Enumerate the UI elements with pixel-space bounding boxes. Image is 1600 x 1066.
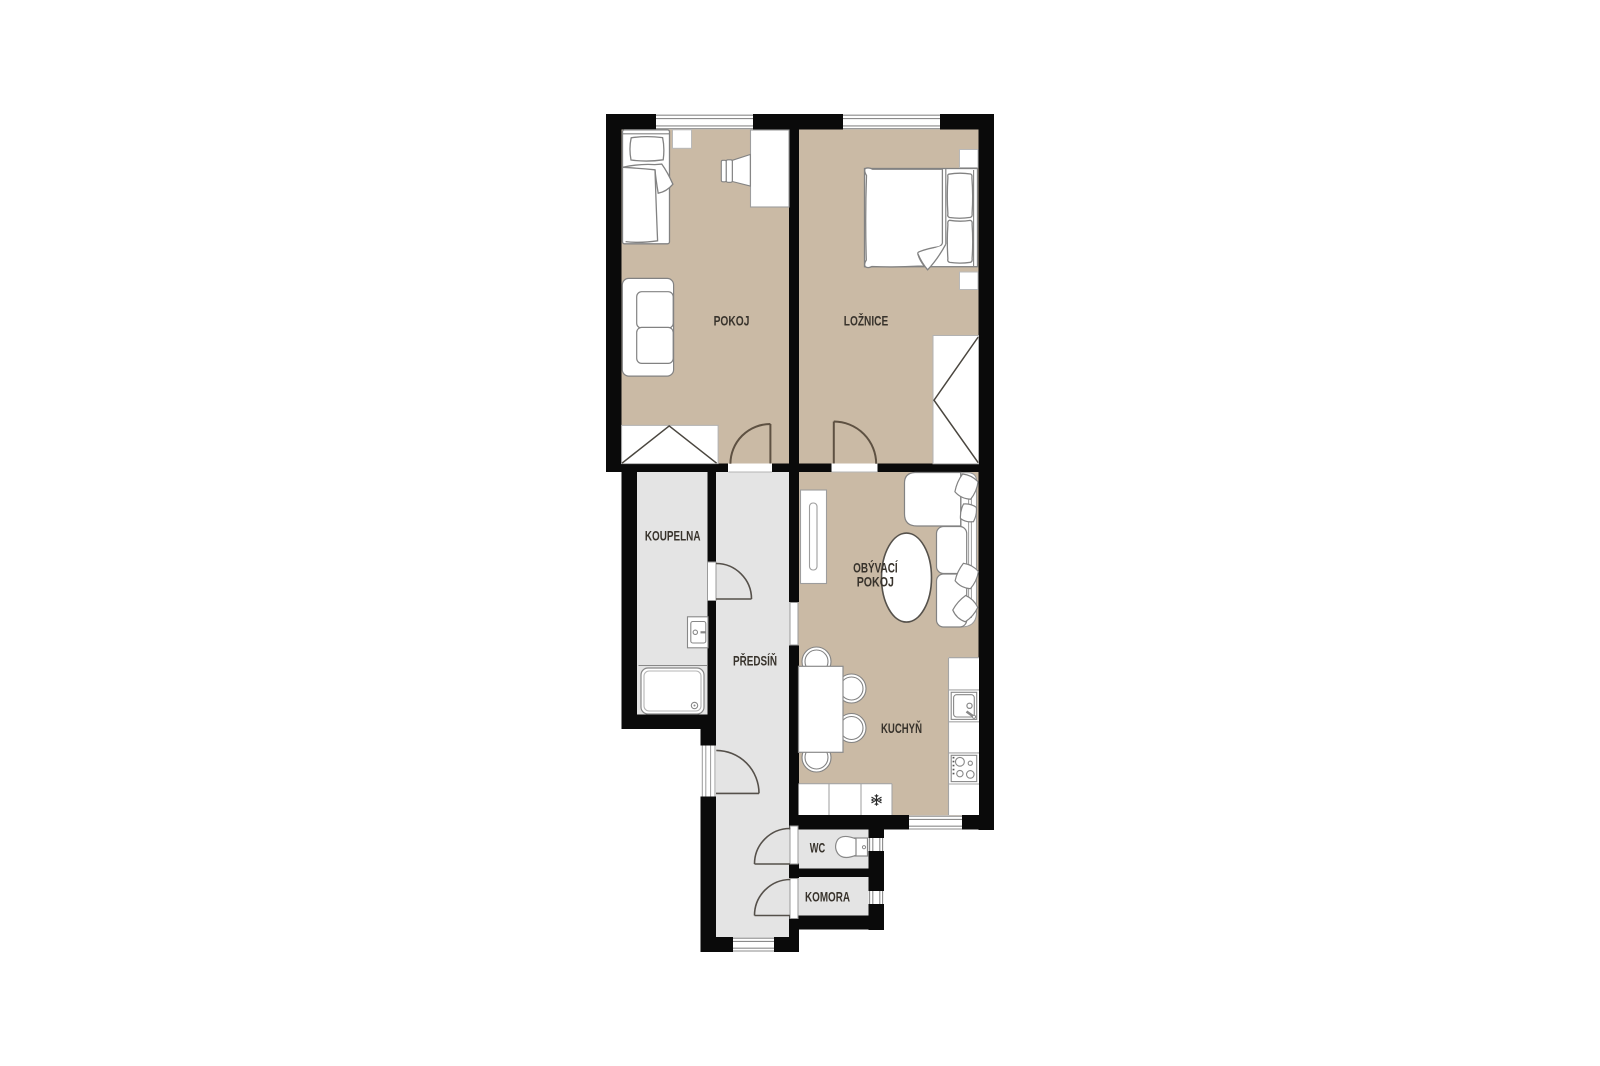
svg-text:WC: WC xyxy=(810,840,825,856)
svg-text:PŘEDSÍŇ: PŘEDSÍŇ xyxy=(733,651,777,668)
svg-text:LOŽNICE: LOŽNICE xyxy=(844,312,888,329)
svg-text:KOUPELNA: KOUPELNA xyxy=(645,528,701,544)
svg-text:POKOJ: POKOJ xyxy=(857,574,894,590)
svg-text:POKOJ: POKOJ xyxy=(714,313,750,329)
svg-text:KUCHYŇ: KUCHYŇ xyxy=(881,719,922,736)
svg-text:KOMORA: KOMORA xyxy=(805,889,850,905)
